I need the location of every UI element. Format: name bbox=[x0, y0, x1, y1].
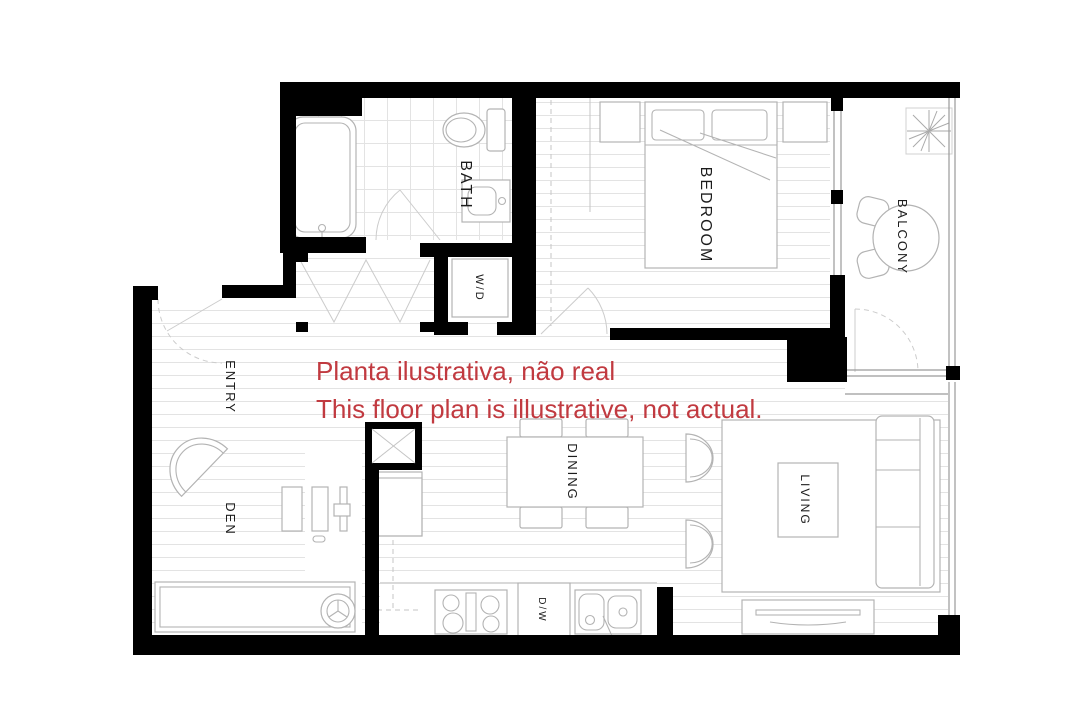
dining-label: DINING bbox=[565, 443, 580, 501]
dining-chair bbox=[520, 507, 562, 528]
toilet-icon bbox=[443, 109, 505, 151]
bedroom-label: BEDROOM bbox=[697, 167, 714, 264]
bathtub-icon bbox=[289, 117, 356, 238]
laundry-label: W/D bbox=[473, 274, 485, 301]
entry-label: ENTRY bbox=[223, 360, 238, 414]
kitchen-sink-icon bbox=[575, 590, 641, 636]
tv-console-icon bbox=[742, 600, 874, 634]
wall-laundry-left bbox=[434, 257, 448, 332]
wall-kitchen-end bbox=[657, 587, 673, 645]
dining-chair bbox=[586, 507, 628, 528]
balcony-label: BALCONY bbox=[895, 199, 910, 275]
closet-stub bbox=[420, 322, 434, 332]
floor-plan-page: BATH W/D BEDROOM BALCONY ENTRY DEN DININ… bbox=[0, 0, 1080, 720]
floor-plan-canvas: BATH W/D BEDROOM BALCONY ENTRY DEN DININ… bbox=[0, 0, 1080, 720]
window-mullion bbox=[946, 366, 960, 380]
window-mullion bbox=[831, 98, 843, 111]
wall-laundry-bottom-left bbox=[434, 322, 468, 335]
closet-stub bbox=[296, 253, 308, 262]
sofa-icon bbox=[876, 416, 934, 588]
wall-laundry-bottom-right bbox=[497, 322, 536, 335]
floor-lamp-icon bbox=[321, 594, 355, 628]
wall-bottom bbox=[133, 635, 960, 655]
wall-bedroom-balcony bbox=[830, 275, 845, 337]
dishwasher-label: D/W bbox=[536, 597, 547, 622]
wall-laundry-top bbox=[420, 243, 512, 257]
window-mullion bbox=[831, 190, 843, 204]
disclaimer-line-en: This floor plan is illustrative, not act… bbox=[316, 394, 763, 424]
wall-bath-right bbox=[512, 82, 536, 332]
wall-bottom-right-corner bbox=[938, 615, 960, 645]
desk-chair bbox=[282, 487, 302, 531]
bath-label: BATH bbox=[457, 160, 474, 209]
wall-bath-left bbox=[280, 82, 296, 253]
shaft-column bbox=[365, 422, 422, 470]
den-label: DEN bbox=[223, 502, 238, 535]
disclaimer-line-pt: Planta ilustrativa, não real bbox=[316, 356, 615, 386]
nightstand-right bbox=[783, 102, 827, 142]
wall-under-tub bbox=[280, 237, 366, 253]
closet-stub bbox=[296, 322, 308, 332]
wall-entry-top bbox=[222, 285, 296, 298]
stove-icon bbox=[435, 590, 507, 634]
wall-top bbox=[280, 82, 960, 98]
wall-balcony-block bbox=[787, 337, 847, 382]
living-label: LIVING bbox=[798, 474, 812, 525]
wall-left bbox=[133, 286, 152, 655]
nightstand-left bbox=[600, 102, 640, 142]
